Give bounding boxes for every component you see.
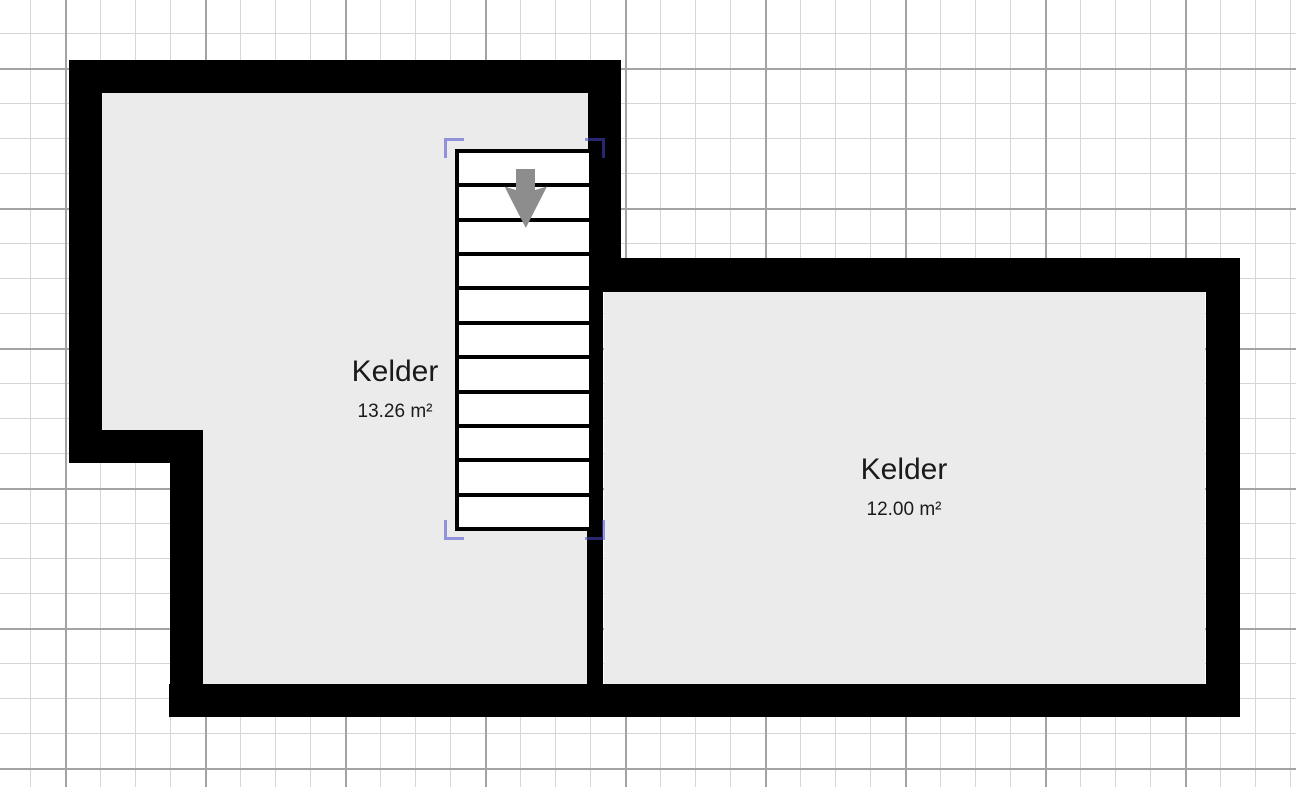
wall-right-of-right-room[interactable] [1206, 258, 1240, 717]
stair-step [459, 359, 589, 389]
room-area: 12.00 m² [861, 499, 948, 521]
arrow-down-icon [504, 169, 548, 229]
room-name: Kelder [352, 355, 439, 389]
wall-top[interactable] [69, 60, 621, 93]
stair-step [459, 462, 589, 492]
wall-left-lower[interactable] [170, 430, 203, 717]
stair-step [459, 497, 589, 527]
stair-step [459, 290, 589, 320]
room-name: Kelder [861, 453, 948, 487]
room-area: 13.26 m² [352, 401, 439, 423]
selection-corner-top-left [444, 138, 464, 158]
stair-step [459, 325, 589, 355]
stair-step [459, 394, 589, 424]
wall-top-of-right-room[interactable] [604, 258, 1240, 292]
room-label-right: Kelder 12.00 m² [861, 453, 948, 521]
wall-left-upper[interactable] [69, 60, 102, 463]
staircase[interactable] [455, 149, 593, 531]
room-label-left: Kelder 13.26 m² [352, 355, 439, 423]
selection-corner-bottom-right [585, 520, 605, 540]
stair-step [459, 428, 589, 458]
selection-corner-bottom-left [444, 520, 464, 540]
wall-bottom[interactable] [169, 684, 1240, 717]
stair-step [459, 256, 589, 286]
floorplan-canvas[interactable]: Kelder 13.26 m² Kelder 12.00 m² [0, 0, 1296, 787]
selection-corner-top-right [585, 138, 605, 158]
